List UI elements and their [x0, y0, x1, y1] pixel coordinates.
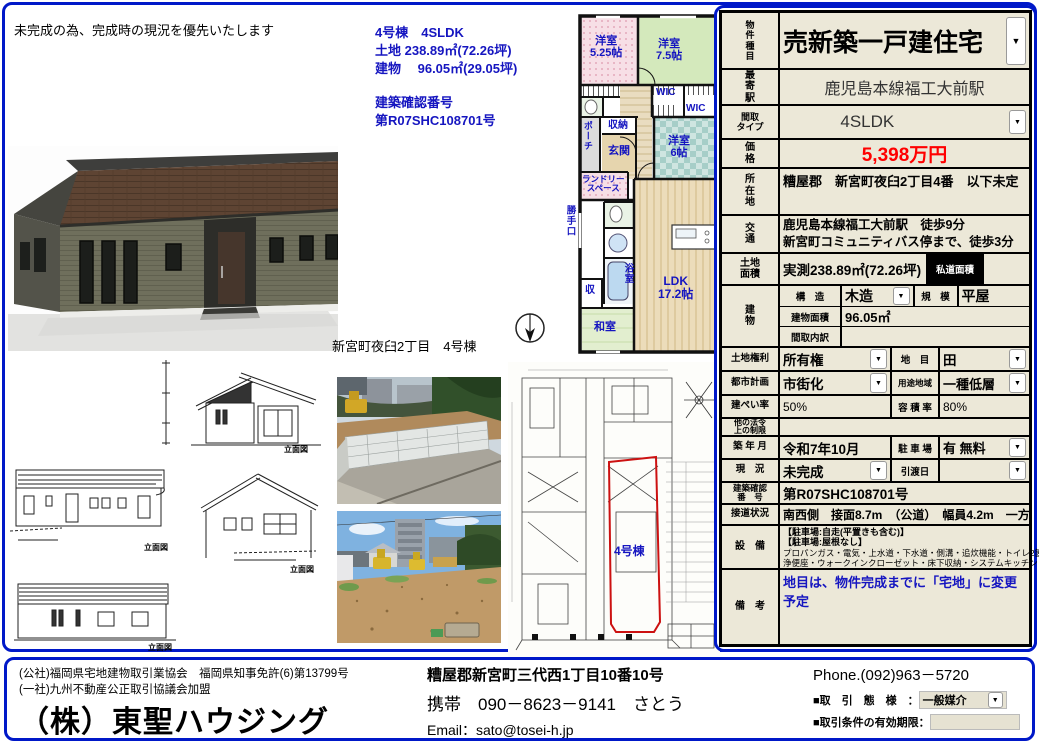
zone-value-cell: 一種低層 ▼: [940, 372, 1029, 394]
siteplan-unit-label: 4号棟: [614, 542, 645, 559]
footer-frame: (公社)福岡県宅地建物取引業協会 福岡県知事免許(6)第13799号 (一社)九…: [4, 657, 1035, 741]
layout-value-cell: 4SLDK ▼: [780, 106, 1029, 138]
office-address: 糟屋郡新宮町三代西1丁目10番10号: [427, 664, 797, 685]
other-law-label: 他の法令 上の制限: [722, 419, 780, 435]
handover-dropdown[interactable]: ▼: [1009, 461, 1026, 480]
fp-room2-label: 洋室 7.5帖: [656, 38, 682, 62]
license-line-2: (一社)九州不動産公正取引協議会加盟: [19, 681, 419, 697]
land-value: 実測238.89㎡(72.26坪): [783, 259, 921, 279]
handover-label: 引渡日: [892, 460, 940, 481]
parking-label: 駐 車 場: [892, 437, 940, 458]
row-other-law: 他の法令 上の制限: [722, 419, 1029, 437]
lot-dropdown[interactable]: ▼: [1009, 349, 1026, 369]
summary-confirm-label: 建築確認番号: [375, 94, 517, 112]
status-value: 未完成: [783, 461, 824, 481]
remarks-value-cell: 地目は、物件完成までに「宅地」に変更予定: [780, 570, 1029, 644]
equipment-line3: プロパンガス・電気・上水道・下水道・側溝・追炊機能・トイレ2箇所・温水洗: [783, 548, 1026, 558]
summary-unit: 4号棟 4SLDK: [375, 24, 517, 42]
disclaimer-text: 未完成の為、完成時の現況を優先いたします: [14, 20, 274, 39]
lot-label: 地 目: [892, 348, 940, 370]
structure-value: 木造: [845, 286, 873, 306]
fp-wic2-label: WIC: [686, 103, 705, 114]
city-plan-dropdown[interactable]: ▼: [870, 373, 887, 393]
lot-value-cell: 田 ▼: [940, 348, 1029, 370]
access-value-cell: 鹿児島本線福工大前駅 徒歩9分 新宮町コミュニティバス停まで、徒歩3分: [780, 216, 1029, 252]
email-address: Email：sato@tosei-h.jp: [427, 720, 797, 740]
scale-value: 平屋: [962, 286, 990, 306]
station-value: 鹿児島本線福工大前駅: [824, 75, 984, 99]
validity-label: ■取引条件の有効期限：: [813, 714, 930, 730]
row-status: 現 況 未完成 ▼ 引渡日 ▼: [722, 460, 1029, 483]
road-value: 南西側 接面8.7m （公道） 幅員4.2m 一方: [783, 506, 1030, 523]
floorplan-caption: 新宮町夜臼2丁目 4号棟: [332, 336, 476, 355]
other-law-value-cell: [780, 419, 1029, 435]
company-name: （株）東聖ハウジング: [19, 697, 419, 741]
parking-value-cell: 有 無料 ▼: [940, 437, 1029, 458]
building-area-label: 建物面積: [780, 307, 842, 326]
far-value-cell: 80%: [940, 396, 1029, 417]
location-label: 所 在 地: [722, 169, 780, 214]
mobile-phone: 携帯 090－8623－9141 さとう: [427, 690, 797, 715]
fp-laundry-label: ランドリー スペース: [582, 175, 625, 194]
row-remarks: 備 考 地目は、物件完成までに「宅地」に変更予定: [722, 570, 1029, 644]
row-property-type: 物 件 種 目 売新築一戸建住宅 ▼: [722, 13, 1029, 70]
row-city-plan: 都市計画 市街化 ▼ 用途地域 一種低層 ▼: [722, 372, 1029, 396]
row-station: 最 寄 駅 鹿児島本線福工大前駅: [722, 70, 1029, 106]
zone-dropdown[interactable]: ▼: [1009, 373, 1026, 393]
property-type-label: 物 件 種 目: [722, 13, 780, 68]
price-value-cell: 5,398万円: [780, 140, 1029, 167]
access-value: 鹿児島本線福工大前駅 徒歩9分 新宮町コミュニティバス停まで、徒歩3分: [783, 217, 1014, 251]
fp-porch-label: ポーチ: [582, 121, 592, 151]
site-photo-1: [337, 377, 501, 504]
row-confirm: 建築確認 番 号 第R07SHC108701号: [722, 483, 1029, 505]
confirm-label: 建築確認 番 号: [722, 483, 780, 503]
fp-ldk-label: LDK 17.2帖: [658, 275, 693, 301]
fp-kitchendoor-label: 勝手口: [564, 205, 574, 237]
validity-field[interactable]: [930, 714, 1020, 730]
far-label: 容 積 率: [892, 396, 940, 417]
row-built: 築 年 月 令和7年10月 駐 車 場 有 無料 ▼: [722, 437, 1029, 460]
equipment-line2: 【駐車場:屋根なし】: [783, 537, 1026, 547]
footer-company-block: (公社)福岡県宅地建物取引業協会 福岡県知事免許(6)第13799号 (一社)九…: [19, 665, 419, 741]
elevation-label-1: 立面図: [284, 444, 308, 455]
footer-phone-block: Phone.(092)963－5720 ■取 引 態 様 ： 一般媒介 ▼ ■取…: [813, 664, 1031, 730]
elevation-label-3: 立面図: [290, 564, 314, 575]
coverage-label: 建ぺい率: [722, 396, 780, 417]
scale-value-cell: 平屋: [959, 286, 1030, 306]
row-building: 建 物 構 造 木造 ▼ 規 模 平屋 建物面積: [722, 286, 1029, 348]
equipment-line4: 浄便座・ウォークインクローゼット・床下収納・システムキッチン・カウン: [783, 558, 1026, 568]
building-area-value: 96.05㎡: [845, 307, 891, 326]
row-coverage: 建ぺい率 50% 容 積 率 80%: [722, 396, 1029, 419]
summary-confirm-no: 第R07SHC108701号: [375, 112, 517, 130]
building-layout-label: 間取内訳: [780, 327, 842, 346]
structure-label: 構 造: [780, 286, 842, 306]
zone-value: 一種低層: [943, 374, 995, 393]
footer-contact-block: 糟屋郡新宮町三代西1丁目10番10号 携帯 090－8623－9141 さとう …: [427, 664, 797, 740]
fp-room3-label: 洋室 6帖: [668, 135, 690, 159]
station-value-cell: 鹿児島本線福工大前駅: [780, 70, 1029, 104]
access-label: 交 通: [722, 216, 780, 252]
compass-icon: [514, 312, 546, 344]
lot-value: 田: [943, 349, 957, 369]
rights-dropdown[interactable]: ▼: [870, 349, 887, 369]
city-plan-value: 市街化: [783, 373, 824, 393]
coverage-value-cell: 50%: [780, 396, 892, 417]
station-label: 最 寄 駅: [722, 70, 780, 104]
property-type-dropdown[interactable]: ▼: [1006, 17, 1026, 65]
land-value-cell: 実測238.89㎡(72.26坪): [780, 254, 928, 284]
fp-room1-label: 洋室 5.25帖: [590, 35, 622, 59]
rights-value-cell: 所有権 ▼: [780, 348, 892, 370]
built-value: 令和7年10月: [783, 438, 860, 458]
fp-wic1-label: WIC: [656, 87, 675, 98]
deal-type-dropdown[interactable]: ▼: [988, 692, 1003, 708]
deal-type-select[interactable]: 一般媒介 ▼: [919, 691, 1007, 709]
summary-building: 建物 96.05㎡(29.05坪): [375, 60, 517, 78]
location-value: 糟屋郡 新宮町夜臼2丁目4番 以下未定: [783, 171, 1018, 190]
city-plan-label: 都市計画: [722, 372, 780, 394]
property-table-frame: 物 件 種 目 売新築一戸建住宅 ▼ 最 寄 駅 鹿児島本線福工大前駅 間取 タ…: [714, 5, 1037, 652]
equipment-value-cell: 【駐車場:自走(平置きも含む)】 【駐車場:屋根なし】 プロパンガス・電気・上水…: [780, 526, 1029, 568]
deal-type-row: ■取 引 態 様 ： 一般媒介 ▼: [813, 691, 1031, 709]
property-type-value-cell: 売新築一戸建住宅 ▼: [780, 13, 1029, 68]
floor-plan: 洋室 5.25帖 洋室 7.5帖 WIC WIC 収納 玄関 ポーチ ランドリー…: [576, 13, 720, 355]
fp-storage-label: 収納: [608, 120, 628, 131]
building-area-value-cell: 96.05㎡: [842, 307, 1029, 326]
summary-land: 土地 238.89㎡(72.26坪): [375, 42, 517, 60]
layout-dropdown[interactable]: ▼: [1009, 110, 1026, 134]
row-layout: 間取 タイプ 4SLDK ▼: [722, 106, 1029, 140]
fp-entrance-label: 玄関: [608, 145, 630, 157]
status-value-cell: 未完成 ▼: [780, 460, 892, 481]
flyer-page: 未完成の為、完成時の現況を優先いたします 4号棟 4SLDK 土地 238.89…: [0, 0, 1039, 744]
private-road-label: 私道面積: [928, 254, 984, 284]
row-access: 交 通 鹿児島本線福工大前駅 徒歩9分 新宮町コミュニティバス停まで、徒歩3分: [722, 216, 1029, 254]
zone-label: 用途地域: [892, 372, 940, 394]
property-summary: 4号棟 4SLDK 土地 238.89㎡(72.26坪) 建物 96.05㎡(2…: [375, 24, 517, 130]
parking-dropdown[interactable]: ▼: [1009, 438, 1026, 457]
house-rendering: [8, 146, 338, 351]
validity-row: ■取引条件の有効期限：: [813, 714, 1031, 730]
built-label: 築 年 月: [722, 437, 780, 458]
fp-bath-label: 浴室: [622, 263, 632, 284]
elevation-label-4: 立面図: [148, 642, 172, 653]
office-phone: Phone.(092)963－5720: [813, 664, 1031, 685]
price-label: 価 格: [722, 140, 780, 167]
elevation-drawings: 立面図 立面図 立面図 立面図: [6, 348, 332, 653]
road-value-cell: 南西側 接面8.7m （公道） 幅員4.2m 一方: [780, 505, 1029, 524]
equipment-label: 設 備: [722, 526, 780, 568]
row-land: 土地 面積 実測238.89㎡(72.26坪) 私道面積: [722, 254, 1029, 286]
handover-value-cell: ▼: [940, 460, 1029, 481]
license-line-1: (公社)福岡県宅地建物取引業協会 福岡県知事免許(6)第13799号: [19, 665, 419, 681]
equipment-line1: 【駐車場:自走(平置きも含む)】: [783, 527, 1026, 537]
layout-label: 間取 タイプ: [722, 106, 780, 138]
price-value: 5,398万円: [862, 140, 948, 167]
deal-type-label: ■取 引 態 様 ：: [813, 692, 919, 708]
structure-value-cell: 木造 ▼: [842, 286, 915, 306]
building-layout-value-cell: [842, 327, 1029, 346]
row-location: 所 在 地 糟屋郡 新宮町夜臼2丁目4番 以下未定: [722, 169, 1029, 216]
remarks-value: 地目は、物件完成までに「宅地」に変更予定: [783, 572, 1026, 610]
coverage-value: 50%: [783, 400, 807, 414]
site-plan: 4号棟: [508, 362, 720, 657]
row-rights: 土地権利 所有権 ▼ 地 目 田 ▼: [722, 348, 1029, 372]
row-road: 接道状況 南西側 接面8.7m （公道） 幅員4.2m 一方: [722, 505, 1029, 526]
confirm-value: 第R07SHC108701号: [783, 483, 908, 503]
layout-value: 4SLDK: [840, 112, 894, 132]
city-plan-value-cell: 市街化 ▼: [780, 372, 892, 394]
row-price: 価 格 5,398万円: [722, 140, 1029, 169]
deal-type-value: 一般媒介: [923, 692, 967, 708]
property-table: 物 件 種 目 売新築一戸建住宅 ▼ 最 寄 駅 鹿児島本線福工大前駅 間取 タ…: [719, 10, 1032, 647]
built-value-cell: 令和7年10月: [780, 437, 892, 458]
structure-dropdown[interactable]: ▼: [893, 287, 910, 305]
parking-value: 有 無料: [943, 438, 986, 457]
remarks-label: 備 考: [722, 570, 780, 644]
status-dropdown[interactable]: ▼: [870, 461, 887, 480]
status-label: 現 況: [722, 460, 780, 481]
road-label: 接道状況: [722, 505, 780, 524]
private-road-value-cell: [984, 254, 1029, 284]
location-value-cell: 糟屋郡 新宮町夜臼2丁目4番 以下未定: [780, 169, 1029, 214]
site-photo-2: [337, 511, 501, 643]
confirm-value-cell: 第R07SHC108701号: [780, 483, 1029, 503]
property-type-value: 売新築一戸建住宅: [783, 23, 983, 59]
rights-value: 所有権: [783, 349, 824, 369]
rights-label: 土地権利: [722, 348, 780, 370]
building-label: 建 物: [722, 286, 780, 346]
far-value: 80%: [943, 400, 967, 414]
fp-closet-label: 収: [585, 285, 595, 296]
scale-label: 規 模: [915, 286, 959, 306]
land-label: 土地 面積: [722, 254, 780, 284]
fp-washitsu-label: 和室: [594, 321, 616, 333]
row-equipment: 設 備 【駐車場:自走(平置きも含む)】 【駐車場:屋根なし】 プロパンガス・電…: [722, 526, 1029, 570]
elevation-label-2: 立面図: [144, 542, 168, 553]
